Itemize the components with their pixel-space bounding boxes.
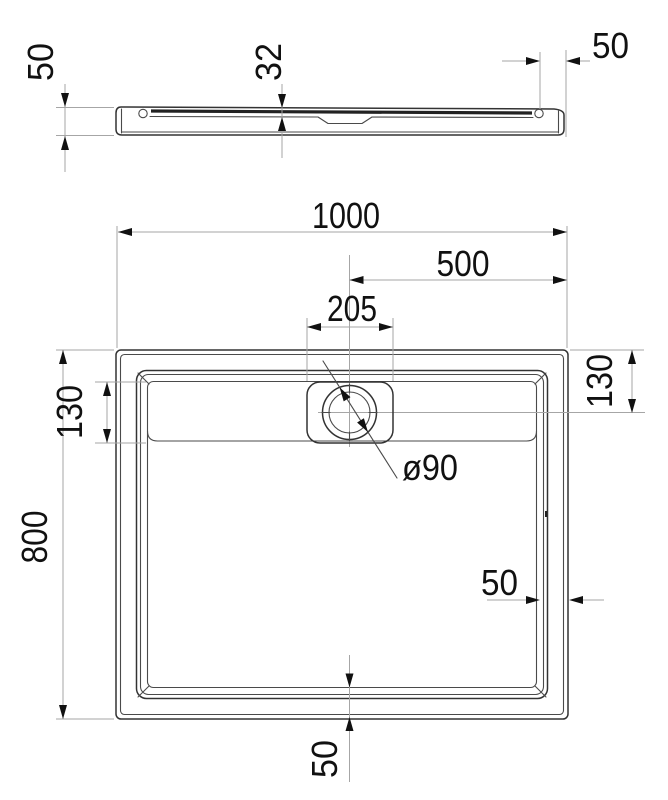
arrowhead-up	[103, 382, 111, 396]
arrowhead-nw	[340, 387, 351, 401]
dim-label-plan-center-offset: 500	[437, 243, 490, 284]
arrowhead-right	[526, 596, 540, 604]
arrowhead-left	[307, 323, 321, 331]
arrowhead-down	[628, 399, 636, 413]
leader-line	[323, 361, 397, 478]
dim-label-plan-drain-width: 205	[327, 288, 377, 329]
arrowhead-se	[357, 418, 368, 432]
dim-label-side-height: 50	[20, 43, 61, 81]
dim-label-plan-drain-right: 130	[579, 354, 620, 408]
side-floor-underside	[150, 117, 533, 124]
arrowhead-down	[278, 94, 286, 108]
dim-label-drain-diameter: ø90	[402, 447, 458, 488]
arrowhead-left	[566, 57, 580, 65]
plan-rim-inner-rect-2	[141, 375, 544, 695]
side-view	[116, 107, 564, 135]
dim-plan-drain-left: 130	[49, 382, 146, 443]
plan-floor-rect	[148, 382, 537, 688]
arrowhead-up	[61, 136, 69, 150]
arrowhead-left	[350, 276, 364, 284]
arrowhead-right	[526, 57, 540, 65]
arrowhead-up	[59, 350, 67, 364]
dim-side-depth: 32	[248, 43, 289, 158]
arrowhead-down	[346, 674, 354, 688]
plan-rim-inner-rect	[137, 371, 548, 699]
corner-detail-bl	[138, 686, 149, 697]
dim-drain-diameter: ø90	[323, 361, 458, 488]
arrowhead-right	[553, 276, 567, 284]
drawing-canvas: 50 32 50	[0, 0, 668, 800]
plan-outer-rect	[116, 350, 568, 719]
dim-label-side-depth: 32	[248, 43, 289, 81]
arrowhead-left	[569, 596, 583, 604]
side-left-corner-detail	[139, 109, 147, 117]
dim-label-plan-height: 800	[14, 511, 55, 564]
arrowhead-up	[278, 117, 286, 131]
corner-detail-br	[535, 686, 546, 697]
dim-plan-rim-right: 50	[481, 562, 604, 604]
dim-label-plan-rim-bottom: 50	[304, 740, 345, 778]
arrowhead-right	[553, 228, 567, 236]
arrowhead-left	[118, 228, 132, 236]
dim-side-edge: 50	[502, 25, 629, 137]
plan-outer-rect-inner-line	[121, 355, 564, 715]
technical-drawing: 50 32 50	[0, 0, 668, 800]
dim-side-height: 50	[20, 43, 114, 172]
dim-label-plan-rim-right: 50	[481, 562, 518, 603]
dim-label-plan-drain-left: 130	[49, 385, 90, 439]
arrowhead-up	[628, 350, 636, 364]
arrowhead-down	[59, 705, 67, 719]
dim-plan-drain-right: 130	[570, 350, 644, 413]
dim-label-side-edge: 50	[592, 25, 629, 66]
side-right-corner-detail	[535, 109, 543, 117]
arrowhead-down	[61, 93, 69, 107]
arrowhead-right	[379, 323, 393, 331]
drain-channel-divider	[148, 431, 537, 441]
dim-plan-center-offset: 500	[350, 243, 568, 284]
side-floor-edge	[151, 111, 532, 113]
dim-label-plan-width: 1000	[312, 195, 380, 236]
arrowhead-down	[103, 429, 111, 443]
